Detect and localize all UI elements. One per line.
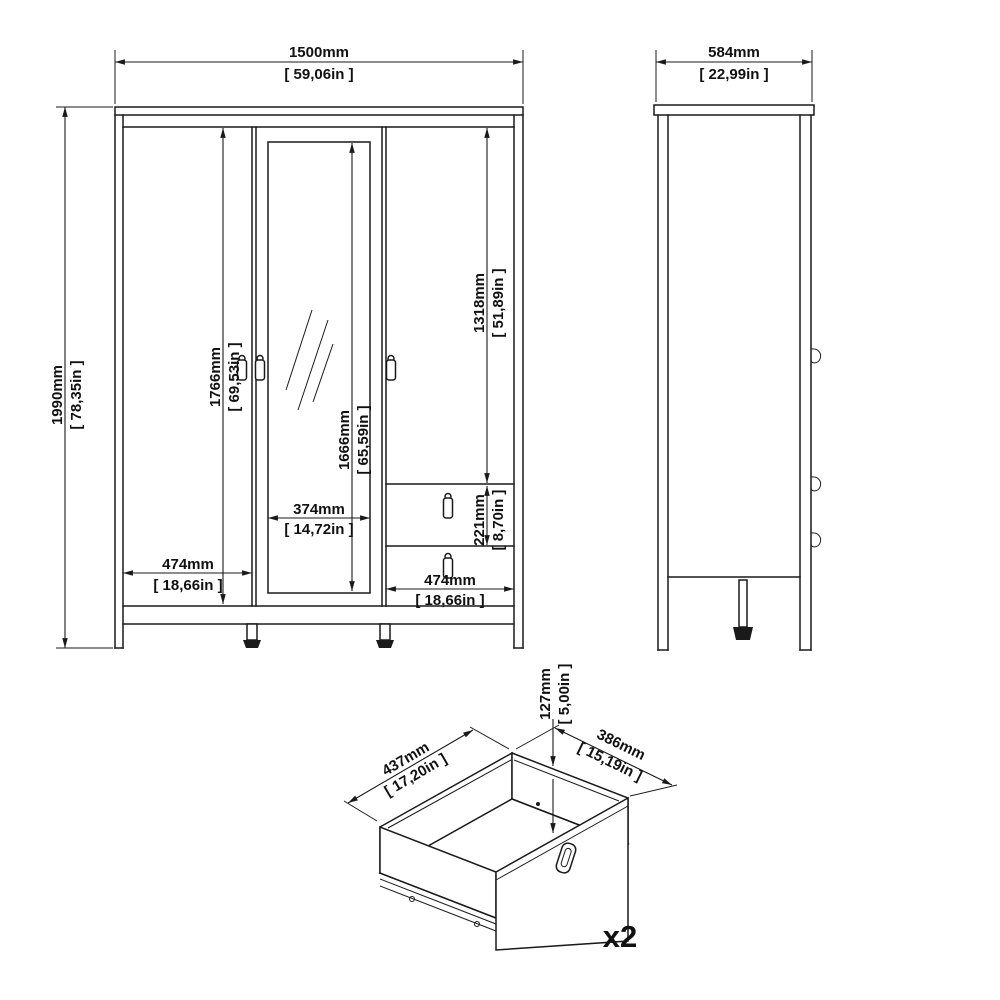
side-foot <box>733 580 753 640</box>
drawer1-handle <box>444 494 453 519</box>
mirror-height-mm-label: 1666mm <box>336 410 353 470</box>
front-width-in-label: [ 59,06in ] <box>284 66 353 83</box>
technical-drawing-page: 1500mm [ 59,06in ] 1990mm [ 78,35in ] 17… <box>0 0 1000 1000</box>
side-depth-mm-label: 584mm <box>708 44 760 61</box>
top-cap <box>115 107 523 115</box>
middle-door-handle <box>256 356 265 381</box>
front-width-mm-label: 1500mm <box>289 44 349 61</box>
right-width-in-label: [ 18,66in ] <box>415 592 484 609</box>
drawer-mm-label: 221mm <box>471 494 488 546</box>
side-top-cap <box>654 105 814 115</box>
dim-right-door-width: 474mm [ 18,66in ] <box>386 572 514 609</box>
left-door-in-label: [ 69,53in ] <box>226 342 243 411</box>
mirror-width-mm-label: 374mm <box>293 501 345 518</box>
wardrobe-dimension-diagram: 1500mm [ 59,06in ] 1990mm [ 78,35in ] 17… <box>0 0 1000 1000</box>
dim-right-door-height: 1318mm [ 51,89in ] <box>471 128 507 483</box>
dim-front-width: 1500mm [ 59,06in ] <box>115 44 523 104</box>
dim-front-height: 1990mm [ 78,35in ] <box>49 107 113 648</box>
left-width-in-label: [ 18,66in ] <box>153 577 222 594</box>
drawer-quantity-label: x2 <box>603 919 637 954</box>
dim-drawer-height: 221mm [ 8,70in ] <box>471 486 507 550</box>
front-height-mm-label: 1990mm <box>49 365 66 425</box>
side-view: 584mm [ 22,99in ] <box>654 44 821 650</box>
dim-side-depth: 584mm [ 22,99in ] <box>656 44 812 102</box>
front-view: 1500mm [ 59,06in ] 1990mm [ 78,35in ] 17… <box>49 44 523 648</box>
adjustable-foot <box>243 624 261 648</box>
front-height-in-label: [ 78,35in ] <box>68 360 85 429</box>
right-door-handle <box>387 356 396 381</box>
mirror-width-in-label: [ 14,72in ] <box>284 521 353 538</box>
drawer-height-mm-label: 127mm <box>537 668 554 720</box>
side-handle-hooks <box>811 349 821 547</box>
dim-left-door-height: 1766mm [ 69,53in ] <box>207 128 243 604</box>
floor-screw <box>536 802 540 806</box>
right-door-in-label: [ 51,89in ] <box>490 268 507 337</box>
drawer-in-label: [ 8,70in ] <box>490 490 507 551</box>
mirror-height-in-label: [ 65,59in ] <box>355 405 372 474</box>
drawer-detail: 437mm [ 17,20in ] 386mm [ 15,19in ] 127m… <box>344 664 677 954</box>
side-depth-in-label: [ 22,99in ] <box>699 66 768 83</box>
right-door-mm-label: 1318mm <box>471 273 488 333</box>
left-width-mm-label: 474mm <box>162 556 214 573</box>
left-door-mm-label: 1766mm <box>207 347 224 407</box>
dim-left-door-width: 474mm [ 18,66in ] <box>123 556 252 594</box>
right-width-mm-label: 474mm <box>424 572 476 589</box>
adjustable-foot <box>376 624 394 648</box>
drawer-height-in-label: [ 5,00in ] <box>556 664 573 725</box>
